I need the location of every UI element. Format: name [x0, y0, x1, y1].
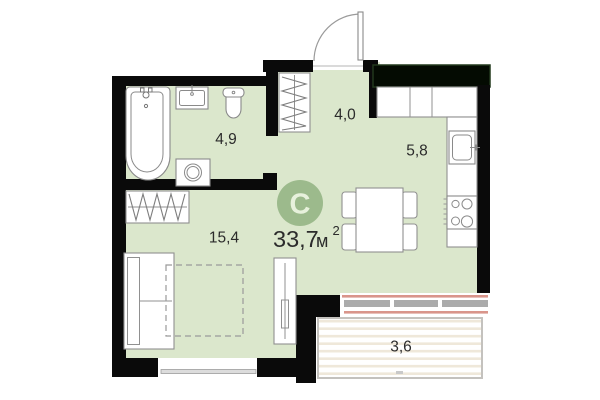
living-wardrobe: [126, 191, 189, 223]
chair: [402, 224, 417, 250]
room-label-hallway: 4,0: [334, 107, 356, 124]
kitchen-sink: [449, 131, 480, 164]
room-label-kitchen: 5,8: [406, 143, 428, 160]
entrance-door: [313, 12, 363, 70]
chair: [402, 192, 417, 218]
total-area-unit: м: [316, 231, 328, 251]
unit-type-letter: C: [290, 189, 311, 221]
room-label-living-room: 15,4: [209, 230, 240, 247]
balcony-mark: [396, 371, 403, 374]
total-area-sup: 2: [333, 223, 340, 238]
hall-wardrobe: [279, 73, 310, 132]
wall-bottom-left: [112, 358, 158, 377]
room-label-bathroom: 4,9: [215, 131, 237, 148]
washbasin: [176, 85, 208, 109]
floor-plan: C 33,7 м 2 4,9 4,0 5,8 15,4 3,6: [0, 0, 600, 400]
wall-balcony-top: [296, 295, 340, 317]
room-label-balcony: 3,6: [390, 339, 412, 356]
unit-type-badge: C: [277, 180, 323, 226]
stove: [444, 196, 478, 229]
door-swing-arc: [314, 14, 361, 61]
floor-plan-drawing: C 33,7 м 2 4,9 4,0 5,8 15,4 3,6: [0, 0, 600, 400]
tall-cabinet: [274, 258, 296, 344]
chair: [342, 224, 357, 250]
wall-kitchen-top: [373, 65, 490, 87]
balcony-window: [340, 293, 490, 318]
wall-bathroom-right: [266, 61, 278, 136]
wall-bathroom-top: [112, 76, 268, 86]
wall-bottom-mid: [257, 358, 297, 377]
kitchen-counter-top: [377, 87, 477, 117]
total-area-value: 33,7: [273, 226, 319, 252]
wall-entry-left: [263, 60, 313, 72]
door-opening: [313, 57, 363, 70]
washing-machine: [176, 159, 210, 186]
dining-table: [356, 188, 403, 252]
chair: [342, 192, 357, 218]
living-room-window: [158, 358, 257, 377]
door-leaf: [358, 12, 363, 60]
wall-right: [477, 85, 490, 297]
wall-bathroom-door-jamb: [263, 173, 277, 190]
